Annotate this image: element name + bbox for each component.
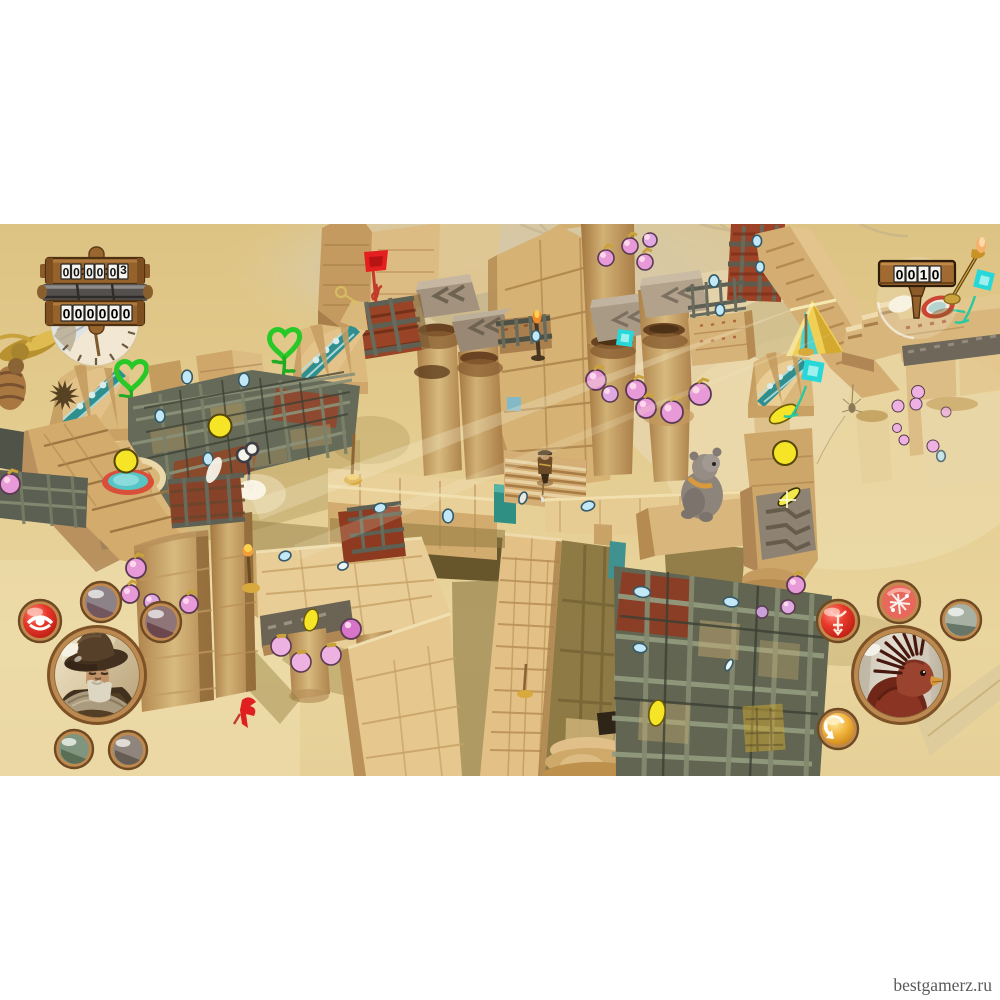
svg-text:0: 0: [75, 306, 83, 322]
svg-text:0: 0: [63, 306, 71, 322]
svg-text:0: 0: [123, 306, 131, 322]
svg-text:bestgamerz.ru: bestgamerz.ru: [893, 975, 992, 995]
svg-text:0: 0: [63, 266, 70, 280]
svg-text:0: 0: [99, 306, 107, 322]
svg-text:0: 0: [908, 267, 916, 283]
svg-text:0: 0: [110, 266, 117, 280]
svg-text:0: 0: [932, 267, 940, 283]
svg-text:0: 0: [896, 267, 904, 283]
svg-text:0: 0: [73, 266, 80, 280]
svg-text:0: 0: [97, 266, 104, 280]
svg-text:0: 0: [111, 306, 119, 322]
svg-text:0: 0: [86, 266, 93, 280]
svg-text:3: 3: [120, 263, 127, 277]
svg-text:0: 0: [87, 306, 95, 322]
svg-text:1: 1: [920, 267, 928, 283]
